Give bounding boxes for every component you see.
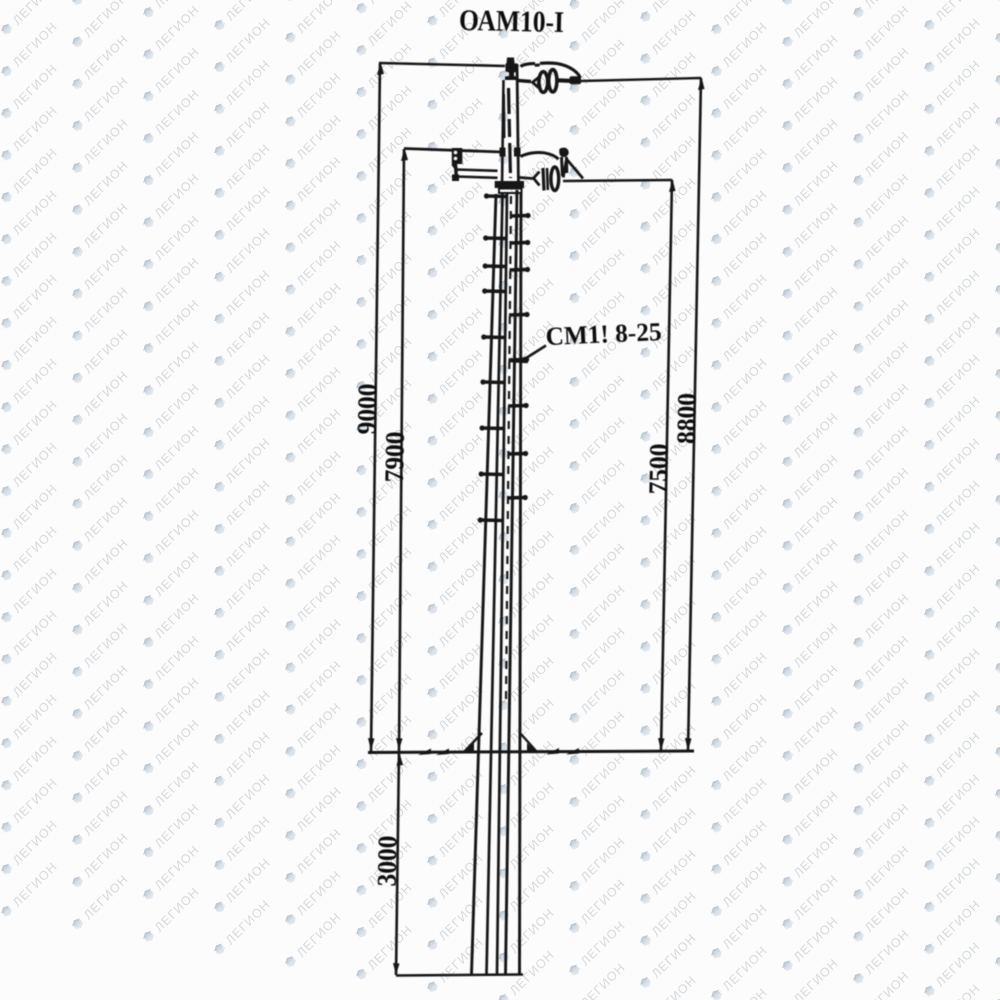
svg-text:9000: 9000 <box>351 383 382 435</box>
svg-text:7500: 7500 <box>643 443 674 495</box>
svg-text:3000: 3000 <box>371 835 402 887</box>
svg-text:СМ1! 8-25: СМ1! 8-25 <box>545 317 662 351</box>
svg-text:7900: 7900 <box>379 431 410 483</box>
svg-text:ОАМ10-I: ОАМ10-I <box>459 4 565 39</box>
svg-text:8800: 8800 <box>671 393 702 445</box>
